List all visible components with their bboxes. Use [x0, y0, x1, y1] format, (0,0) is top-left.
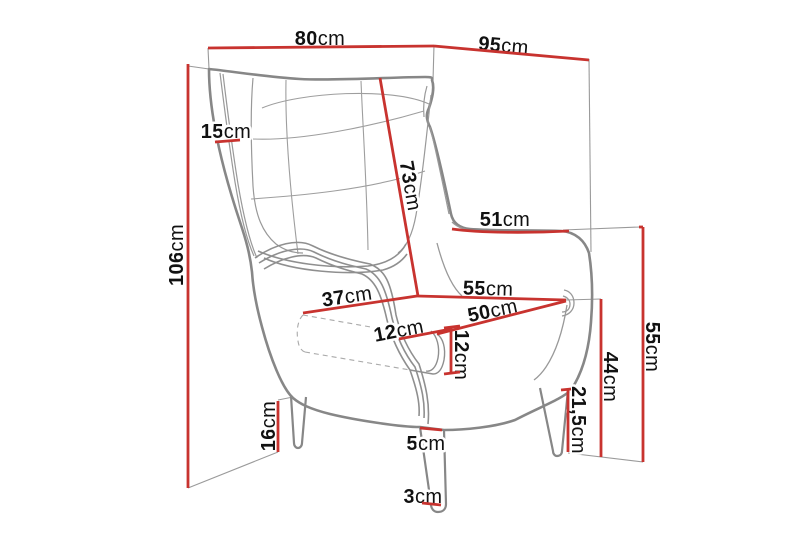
svg-text:51cm: 51cm: [480, 209, 531, 231]
svg-text:5cm: 5cm: [407, 433, 446, 455]
svg-text:15cm: 15cm: [201, 121, 252, 143]
svg-text:21,5cm: 21,5cm: [567, 386, 589, 454]
svg-text:106cm: 106cm: [166, 224, 188, 286]
